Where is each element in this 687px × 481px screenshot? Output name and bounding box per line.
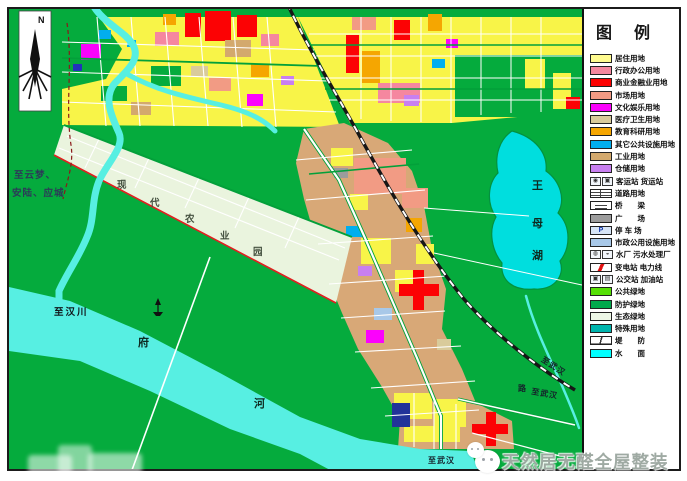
- legend-swatch: [590, 54, 612, 63]
- legend-label: 行政办公用地: [615, 65, 660, 76]
- legend-item: 防护绿地: [584, 298, 679, 310]
- legend-label: 变电站 电力线: [615, 262, 662, 273]
- legend-list: 居住用地行政办公用地商业金融业用地市场用地文化娱乐用地医疗卫生用地教育科研用地其…: [584, 52, 679, 359]
- legend-label: 市场用地: [615, 90, 645, 101]
- legend-item: 市政公用设施用地: [584, 236, 679, 248]
- legend-label: 客运站 货运站: [616, 176, 663, 187]
- legend-swatch: [590, 324, 612, 333]
- legend-item: 教育科研用地: [584, 126, 679, 138]
- legend-item: 其它公共设施用地: [584, 138, 679, 150]
- map-canvas: N: [9, 9, 582, 470]
- road-swatch-icon: [590, 189, 612, 198]
- legend-label: 其它公共设施用地: [615, 139, 675, 150]
- gas-station-icon: ▤: [602, 275, 613, 284]
- legend-swatch: [590, 300, 612, 309]
- north-arrow: N: [19, 11, 51, 111]
- legend-item: 工业用地: [584, 150, 679, 162]
- legend-swatch: [590, 349, 612, 358]
- north-label: N: [38, 15, 45, 25]
- legend-label: 生态绿地: [615, 311, 645, 322]
- legend-item: 商业金融业用地: [584, 77, 679, 89]
- legend-swatch: [590, 115, 612, 124]
- legend-swatch: [590, 78, 612, 87]
- legend-item: 水 面: [584, 347, 679, 359]
- legend-swatch: [590, 312, 612, 321]
- legend-item: 道路用地: [584, 187, 679, 199]
- legend-label: 工业用地: [615, 151, 645, 162]
- legend-item: ◉▣客运站 货运站: [584, 175, 679, 187]
- parking-icon: P: [590, 226, 612, 235]
- legend-title: 图 例: [596, 19, 679, 43]
- legend-label: 停 车 场: [615, 225, 642, 236]
- legend-item: 特殊用地: [584, 323, 679, 335]
- substation-powerline-icon: [590, 263, 612, 272]
- legend-label: 居住用地: [615, 53, 645, 64]
- legend-label: 水 面: [615, 348, 645, 359]
- planning-map-image: N 至云梦、安陆、应城至汉川府河王母湖现代农业园至武汉路至武汉至武汉 图 例 居…: [0, 0, 687, 481]
- legend-item: 仓储用地: [584, 163, 679, 175]
- legend-swatch: [590, 164, 612, 173]
- legend-label: 堤 防: [615, 335, 645, 346]
- legend-label: 防护绿地: [615, 299, 645, 310]
- legend-item: 广 场: [584, 212, 679, 224]
- legend-swatch: [590, 91, 612, 100]
- freight-station-icon: ▣: [602, 177, 613, 186]
- bridge-swatch-icon: [590, 201, 612, 210]
- legend-label: 公共绿地: [615, 286, 645, 297]
- legend-swatch: [590, 214, 612, 223]
- legend-label: 广 场: [615, 213, 645, 224]
- legend-item: 市场用地: [584, 89, 679, 101]
- legend-swatch: [590, 238, 612, 247]
- legend-item: ◍◒水厂 污水处理厂: [584, 249, 679, 261]
- legend-panel: 图 例 居住用地行政办公用地商业金融业用地市场用地文化娱乐用地医疗卫生用地教育科…: [582, 9, 679, 469]
- bus-station-icon: ▣: [590, 275, 601, 284]
- legend-item: P停 车 场: [584, 224, 679, 236]
- sewage-plant-icon: ◒: [602, 250, 613, 259]
- legend-item: 文化娱乐用地: [584, 101, 679, 113]
- legend-item: 变电站 电力线: [584, 261, 679, 273]
- legend-swatch: [590, 152, 612, 161]
- watermark: 天然居无醛全屋整装: [468, 442, 669, 478]
- water-plant-icon: ◍: [590, 250, 601, 259]
- levee-swatch-icon: [590, 336, 612, 345]
- legend-label: 文化娱乐用地: [615, 102, 660, 113]
- legend-label: 特殊用地: [615, 323, 645, 334]
- legend-item: 行政办公用地: [584, 64, 679, 76]
- legend-item: 生态绿地: [584, 310, 679, 322]
- legend-swatch: [590, 140, 612, 149]
- legend-item: 公共绿地: [584, 286, 679, 298]
- blurred-watermark: [28, 441, 144, 478]
- legend-item: 堤 防: [584, 335, 679, 347]
- watermark-text: 天然居无醛全屋整装: [502, 449, 669, 474]
- legend-swatch: [590, 66, 612, 75]
- legend-label: 道路用地: [615, 188, 645, 199]
- legend-label: 水厂 污水处理厂: [616, 249, 671, 260]
- legend-label: 市政公用设施用地: [615, 237, 675, 248]
- legend-item: 居住用地: [584, 52, 679, 64]
- legend-label: 桥 梁: [615, 200, 645, 211]
- legend-swatch: [590, 127, 612, 136]
- passenger-station-icon: ◉: [590, 177, 601, 186]
- legend-swatch: [590, 287, 612, 296]
- legend-item: 医疗卫生用地: [584, 113, 679, 125]
- legend-item: ▣▤公交站 加油站: [584, 273, 679, 285]
- wechat-logo-icon: [468, 442, 502, 478]
- legend-label: 仓储用地: [615, 163, 645, 174]
- legend-swatch: [590, 103, 612, 112]
- legend-label: 商业金融业用地: [615, 77, 668, 88]
- legend-label: 公交站 加油站: [616, 274, 663, 285]
- legend-label: 教育科研用地: [615, 126, 660, 137]
- legend-item: 桥 梁: [584, 200, 679, 212]
- legend-label: 医疗卫生用地: [615, 114, 660, 125]
